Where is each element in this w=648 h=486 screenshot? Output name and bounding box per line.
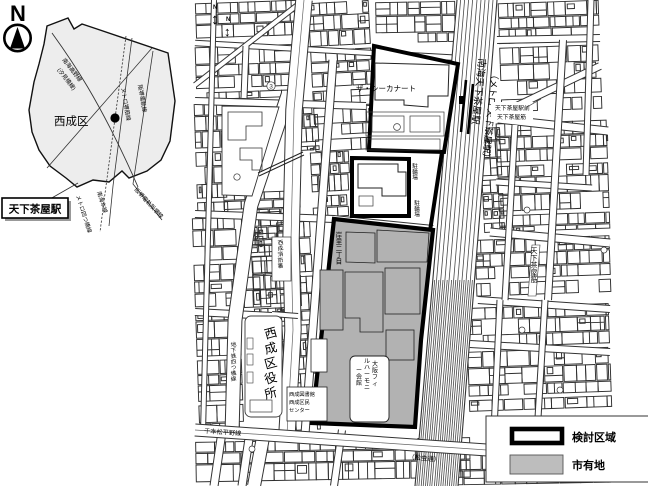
svg-text:天下茶屋駅: 天下茶屋駅 xyxy=(9,203,62,216)
svg-text:駐: 駐 xyxy=(412,162,418,170)
svg-text:市有地: 市有地 xyxy=(572,458,605,472)
svg-text:N: N xyxy=(10,1,26,26)
svg-text:ィ: ィ xyxy=(372,382,378,388)
svg-text:屋: 屋 xyxy=(531,269,538,277)
svg-text:西成図書館: 西成図書館 xyxy=(289,390,315,398)
svg-text:ー: ー xyxy=(356,368,362,374)
svg-text:阪: 阪 xyxy=(372,367,378,375)
svg-text:N: N xyxy=(213,5,217,11)
svg-text:大: 大 xyxy=(372,360,378,368)
svg-text:ハ: ハ xyxy=(364,366,370,372)
svg-text:天下茶屋駅前: 天下茶屋駅前 xyxy=(495,104,530,112)
svg-text:ー: ー xyxy=(364,372,370,378)
svg-text:輪: 輪 xyxy=(414,205,420,213)
svg-text:場: 場 xyxy=(412,174,418,182)
svg-text:目: 目 xyxy=(336,258,342,266)
svg-text:モ: モ xyxy=(364,378,370,385)
svg-text:3: 3 xyxy=(269,84,273,91)
svg-text:↕: ↕ xyxy=(224,24,231,39)
svg-text:西成区民: 西成区民 xyxy=(289,398,310,406)
svg-text:検討区域: 検討区域 xyxy=(572,430,616,444)
svg-text:茶: 茶 xyxy=(531,261,538,270)
svg-text:センター: センター xyxy=(289,406,310,414)
svg-text:場: 場 xyxy=(414,211,420,219)
svg-text:西成区: 西成区 xyxy=(54,115,89,128)
svg-text:↕: ↕ xyxy=(211,11,219,28)
svg-text:下: 下 xyxy=(531,254,538,262)
svg-text:輪: 輪 xyxy=(412,168,418,176)
svg-text:筋: 筋 xyxy=(531,275,538,284)
svg-text:駐: 駐 xyxy=(414,199,420,207)
svg-text:ル: ル xyxy=(364,359,370,365)
svg-text:ザ・シーカナート: ザ・シーカナート xyxy=(356,84,416,93)
svg-text:フ: フ xyxy=(372,374,378,381)
svg-text:天下茶屋筋: 天下茶屋筋 xyxy=(497,113,526,121)
svg-text:会: 会 xyxy=(356,373,362,381)
svg-text:館: 館 xyxy=(356,379,362,387)
svg-text:N: N xyxy=(226,17,230,23)
svg-text:天: 天 xyxy=(531,247,538,255)
svg-text:ニ: ニ xyxy=(364,384,370,391)
